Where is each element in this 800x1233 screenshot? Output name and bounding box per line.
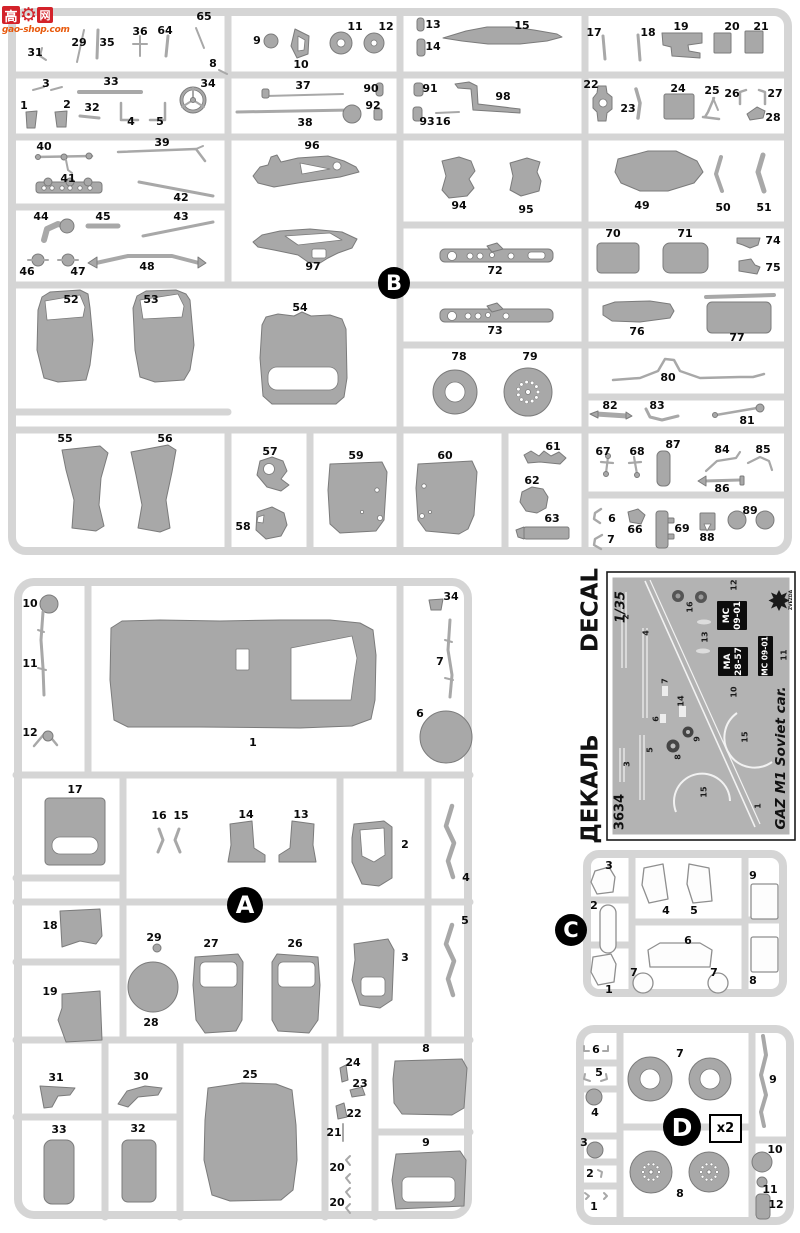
license-plate-decal: МА28-57	[718, 647, 748, 676]
part-number: 71	[677, 227, 692, 240]
part-number: 17	[586, 26, 601, 39]
plate-text: МС 09-01	[761, 636, 770, 676]
part-number: 19	[42, 985, 57, 998]
part-number: 1	[590, 1200, 598, 1213]
decal-number: 12	[730, 579, 739, 590]
part-number: 15	[514, 19, 529, 32]
part-number: 2	[63, 98, 71, 111]
part-number: 75	[765, 261, 780, 274]
part-number: 88	[699, 531, 714, 544]
part-number: 5	[690, 904, 698, 917]
gear-icon: ⚙	[20, 6, 37, 24]
part-number: 49	[634, 199, 649, 212]
part-number: 16	[151, 809, 167, 822]
part-number: 32	[130, 1122, 145, 1135]
part-number: 15	[173, 809, 188, 822]
part-number: 61	[545, 440, 560, 453]
part-number: 91	[422, 82, 437, 95]
part-number: 33	[51, 1123, 66, 1136]
part-number: 12	[22, 726, 37, 739]
decal-number: 11	[780, 649, 789, 661]
part-number: 30	[133, 1070, 149, 1083]
part-number: 32	[84, 101, 99, 114]
part-number: 60	[437, 449, 453, 462]
part-number: 4	[462, 871, 470, 884]
part-number: 55	[57, 432, 72, 445]
part-number: 47	[70, 265, 85, 278]
part-number: 10	[293, 58, 309, 71]
decal-sheet: МС09-01МА28-57МС 09-01123456789101112131…	[578, 568, 796, 844]
part-number: 25	[704, 84, 719, 97]
part-number: 44	[33, 210, 49, 223]
part-number: 24	[345, 1056, 361, 1069]
part-number: 42	[173, 191, 188, 204]
part-number: 18	[42, 919, 57, 932]
part-number: 54	[292, 301, 308, 314]
part-number: 64	[157, 24, 173, 37]
decal-kit-number: 3634	[613, 794, 628, 830]
part-number: 28	[143, 1016, 158, 1029]
part-number: 2	[586, 1167, 594, 1180]
decal-subject: GAZ M1 Soviet car.	[773, 686, 789, 829]
part-number: 34	[443, 590, 459, 603]
part-number: 8	[422, 1042, 430, 1055]
part-number: 5	[595, 1066, 603, 1079]
part-number: 3	[580, 1136, 588, 1149]
decal-number: 10	[730, 686, 739, 698]
part-number: 11	[22, 657, 37, 670]
part-number: 46	[19, 265, 35, 278]
part-number: 7	[436, 655, 444, 668]
brand-name: ZVEZDA	[788, 589, 794, 610]
license-plate-decal: МС 09-01	[758, 636, 773, 676]
part-number: 35	[99, 36, 114, 49]
part-number: 12	[378, 20, 393, 33]
part-number: 84	[714, 443, 730, 456]
part-number: 69	[674, 522, 689, 535]
part-number: 33	[103, 75, 118, 88]
part-number: 51	[756, 201, 771, 214]
part-number: 66	[627, 523, 643, 536]
part-number: 18	[640, 26, 655, 39]
part-number: 3	[605, 859, 613, 872]
decal-number: 5	[646, 747, 655, 753]
part-number: 1	[605, 983, 613, 996]
decal-number: 15	[741, 731, 750, 743]
decal-number: 7	[661, 678, 670, 684]
part-number: 96	[304, 139, 320, 152]
part-number: 23	[620, 102, 635, 115]
sprue-d-badge: D	[663, 1108, 701, 1146]
watermark: 高 ⚙ 网 gao-shop.com	[2, 6, 82, 35]
part-number: 97	[305, 260, 320, 273]
part-number: 52	[63, 293, 78, 306]
part-number: 9	[253, 34, 261, 47]
part-number: 17	[67, 783, 82, 796]
plate-text: МА	[723, 654, 733, 670]
part-number: 92	[365, 99, 380, 112]
sprue-c-badge: C	[555, 914, 587, 946]
watermark-char-left: 高	[2, 6, 20, 24]
part-number: 6	[608, 512, 616, 525]
part-number: 9	[422, 1136, 430, 1149]
part-number: 63	[544, 512, 559, 525]
part-number: 68	[629, 445, 644, 458]
instruction-sheet-page: 1234567891011121314151617181920212223242…	[0, 0, 800, 1233]
part-number: 67	[595, 445, 610, 458]
part-number: 40	[36, 140, 52, 153]
part-number: 6	[416, 707, 424, 720]
part-number: 14	[425, 40, 441, 53]
part-number: 31	[48, 1071, 63, 1084]
part-number: 58	[235, 520, 250, 533]
part-number: 8	[209, 57, 217, 70]
part-number: 8	[749, 974, 757, 987]
part-number: 93	[419, 115, 434, 128]
part-number: 2	[401, 838, 409, 851]
part-number: 19	[673, 20, 688, 33]
part-number: 5	[156, 115, 164, 128]
part-number: 50	[715, 201, 731, 214]
part-number: 77	[729, 331, 744, 344]
quantity-multiplier-box: x2	[709, 1114, 742, 1143]
part-number: 34	[200, 77, 216, 90]
part-number: 62	[524, 474, 539, 487]
plate-text: 28-57	[734, 647, 744, 676]
decal-label-ru: ДЕКАЛЬ	[578, 734, 604, 843]
part-number: 90	[363, 82, 379, 95]
part-number: 7	[710, 966, 718, 979]
part-number: 23	[352, 1077, 367, 1090]
part-number: 16	[435, 115, 451, 128]
part-number: 11	[762, 1183, 777, 1196]
part-number: 4	[662, 904, 670, 917]
part-number: 94	[451, 199, 467, 212]
part-number: 56	[157, 432, 173, 445]
part-number: 10	[22, 597, 38, 610]
decal-number: 16	[686, 601, 695, 613]
part-number: 4	[127, 115, 135, 128]
part-number: 38	[297, 116, 312, 129]
part-number: 37	[295, 79, 310, 92]
part-number: 7	[676, 1047, 684, 1060]
license-plate-decal: МС09-01	[717, 601, 747, 630]
part-number: 76	[629, 325, 645, 338]
decal-number: 9	[693, 736, 702, 742]
part-number: 45	[95, 210, 110, 223]
part-number: 41	[60, 172, 75, 185]
part-number: 22	[583, 78, 598, 91]
part-number: 8	[676, 1187, 684, 1200]
part-number: 83	[649, 399, 664, 412]
part-number: 2	[590, 899, 598, 912]
part-number: 89	[742, 504, 757, 517]
part-number: 20	[329, 1161, 345, 1174]
part-number: 53	[143, 293, 158, 306]
part-number: 73	[487, 324, 502, 337]
part-number: 9	[749, 869, 757, 882]
part-number: 14	[238, 808, 254, 821]
part-number: 4	[591, 1106, 599, 1119]
plate-text: МС	[722, 607, 732, 623]
part-number: 1	[20, 99, 28, 112]
part-number: 20	[329, 1196, 345, 1209]
part-number: 70	[605, 227, 621, 240]
part-number: 7	[607, 533, 615, 546]
watermark-char-right: 网	[37, 7, 53, 23]
part-number: 5	[461, 914, 469, 927]
part-number: 36	[132, 25, 148, 38]
part-number: 28	[765, 111, 780, 124]
part-number: 26	[724, 87, 740, 100]
part-number: 22	[346, 1107, 361, 1120]
part-number: 29	[146, 931, 161, 944]
decal-scale: 1/35	[614, 591, 629, 623]
part-number: 79	[522, 350, 537, 363]
part-number: 31	[27, 46, 42, 59]
part-number: 20	[724, 20, 740, 33]
part-number: 6	[684, 934, 692, 947]
part-number: 72	[487, 264, 502, 277]
part-number: 26	[287, 937, 303, 950]
part-number: 13	[425, 18, 440, 31]
part-number: 95	[518, 203, 533, 216]
part-number: 39	[154, 136, 169, 149]
sprue-a-badge: A	[227, 887, 263, 923]
part-number: 85	[755, 443, 770, 456]
part-number: 21	[753, 20, 768, 33]
part-number: 21	[326, 1126, 341, 1139]
decal-label-en: DECAL	[578, 568, 604, 652]
part-number: 11	[347, 20, 362, 33]
decal-number: 1	[754, 803, 763, 809]
part-number: 81	[739, 414, 754, 427]
decal-number: 6	[652, 716, 661, 722]
part-number: 25	[242, 1068, 257, 1081]
part-number: 6	[592, 1043, 600, 1056]
part-number: 29	[71, 36, 86, 49]
part-number: 74	[765, 234, 781, 247]
part-number: 13	[293, 808, 308, 821]
decal-number: 13	[701, 631, 710, 642]
part-number: 1	[249, 736, 257, 749]
decal-number: 15	[700, 786, 709, 798]
sprue-b-badge: B	[378, 267, 410, 299]
part-number: 7	[630, 966, 638, 979]
watermark-site-text: gao-shop.com	[2, 25, 82, 35]
part-number: 10	[767, 1143, 783, 1156]
part-number: 48	[139, 260, 154, 273]
part-number: 80	[660, 371, 676, 384]
part-number: 27	[203, 937, 218, 950]
part-number: 9	[769, 1073, 777, 1086]
part-number: 59	[348, 449, 363, 462]
part-number: 57	[262, 445, 277, 458]
part-number: 87	[665, 438, 680, 451]
plate-text: 09-01	[733, 601, 743, 630]
part-number: 82	[602, 399, 617, 412]
part-number: 27	[767, 87, 782, 100]
watermark-logo-row: 高 ⚙ 网	[2, 6, 82, 24]
zvezda-logo	[769, 590, 790, 611]
decal-number: 4	[642, 630, 651, 636]
part-number: 24	[670, 82, 686, 95]
part-number: 3	[401, 951, 409, 964]
part-number: 98	[495, 90, 510, 103]
sprue-diagram: 1234567891011121314151617181920212223242…	[0, 0, 800, 1233]
part-number: 12	[768, 1198, 783, 1211]
part-number: 3	[42, 77, 50, 90]
decal-number: 3	[623, 761, 632, 767]
part-number: 65	[196, 10, 211, 23]
part-number: 43	[173, 210, 188, 223]
sprue-c: 1234567789	[587, 854, 783, 996]
decal-number: 8	[674, 754, 683, 760]
part-number: 78	[451, 350, 466, 363]
decal-number: 14	[677, 695, 686, 707]
part-number: 86	[714, 482, 730, 495]
